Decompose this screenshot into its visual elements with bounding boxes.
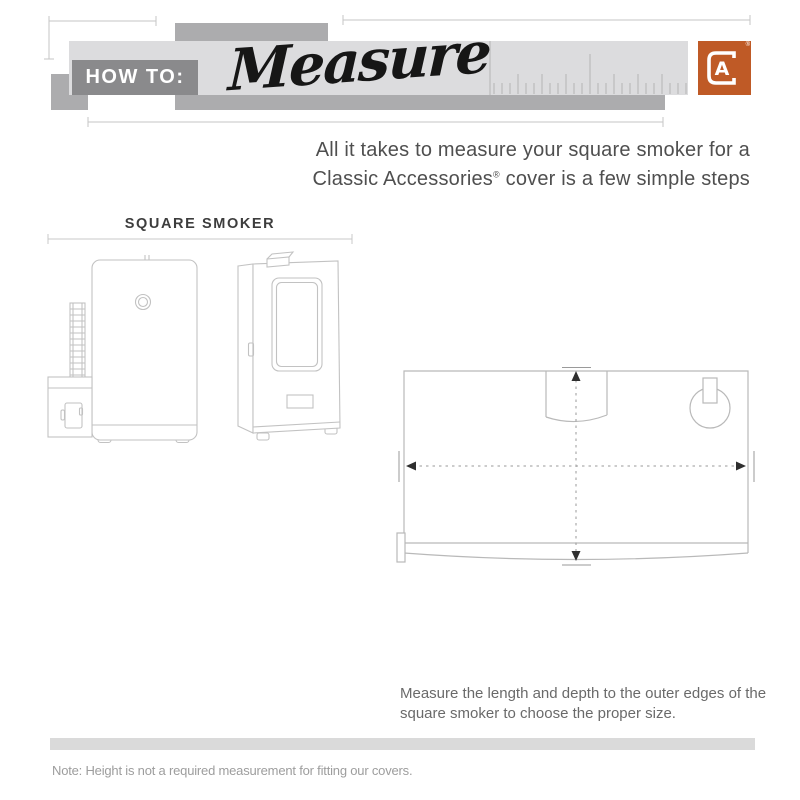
cover-side-tab xyxy=(397,533,405,562)
caption-line-1: Measure the length and depth to the oute… xyxy=(400,684,770,704)
smoker-drawings xyxy=(35,248,365,453)
brand-monogram-icon: A xyxy=(698,41,751,95)
smoker-top-vent xyxy=(145,255,149,260)
intro-text: All it takes to measure your square smok… xyxy=(280,138,750,191)
infographic-page: HOW TO: Measure A ® All it takes to meas… xyxy=(0,0,800,800)
section-label: SQUARE SMOKER xyxy=(45,216,355,232)
cover-chimney-tab xyxy=(703,378,717,403)
smoker-side-rack xyxy=(70,303,85,387)
diagram-caption: Measure the length and depth to the oute… xyxy=(400,684,770,724)
intro-line-1: All it takes to measure your square smok… xyxy=(316,139,750,161)
cover-outline xyxy=(404,371,748,553)
smoker-perspective-view xyxy=(238,252,340,440)
caption-line-2: square smoker to choose the proper size. xyxy=(400,704,770,724)
brand-logo: A ® xyxy=(698,41,751,95)
smoker-front-view xyxy=(48,255,197,443)
arrow-left-icon xyxy=(406,462,416,471)
monogram-letter: A xyxy=(715,58,730,80)
cabinet-side-panel xyxy=(238,264,253,433)
footer-divider-bar xyxy=(50,738,755,750)
arrow-right-icon xyxy=(736,462,746,471)
arrow-up-icon xyxy=(572,371,581,381)
section-measure-line xyxy=(40,232,360,246)
registered-mark: ® xyxy=(746,42,750,48)
cabinet-front-panel xyxy=(253,261,340,433)
brand-name: Classic Accessories xyxy=(312,168,493,190)
footer-note: Note: Height is not a required measureme… xyxy=(52,763,412,778)
how-to-badge: HOW TO: xyxy=(72,60,198,95)
cover-diagram xyxy=(385,360,780,575)
cabinet-top-vent xyxy=(267,252,293,267)
intro-line-2: Classic Accessories® cover is a few simp… xyxy=(312,168,750,190)
how-to-label: HOW TO: xyxy=(85,66,184,89)
smoker-foot xyxy=(257,433,269,440)
trademark-symbol: ® xyxy=(493,169,500,179)
smoker-firebox xyxy=(48,377,92,437)
intro-line-2-rest: cover is a few simple steps xyxy=(500,168,750,190)
smoker-body xyxy=(92,260,197,440)
